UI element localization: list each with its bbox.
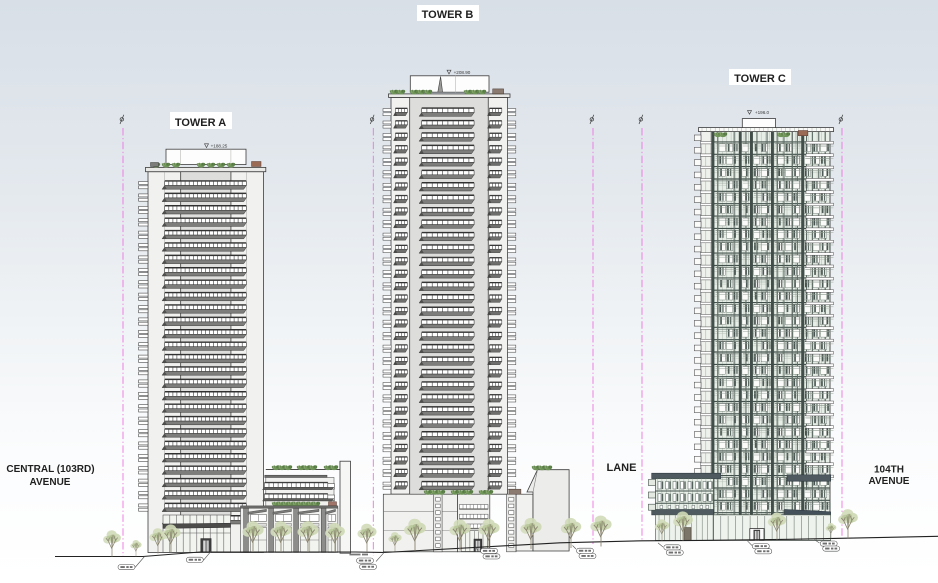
svg-text:LANE: LANE xyxy=(607,462,637,474)
svg-text:AVENUE: AVENUE xyxy=(869,476,910,487)
svg-text:TOWER C: TOWER C xyxy=(734,73,786,85)
svg-text:+208.90: +208.90 xyxy=(454,70,471,75)
svg-text:CENTRAL (103RD): CENTRAL (103RD) xyxy=(6,464,94,475)
svg-text:AVENUE: AVENUE xyxy=(30,477,71,488)
svg-text:+188.25: +188.25 xyxy=(211,144,228,149)
svg-text:TOWER B: TOWER B xyxy=(422,9,474,21)
svg-text:104TH: 104TH xyxy=(874,465,904,476)
svg-text:+196.0: +196.0 xyxy=(755,110,770,115)
svg-text:TOWER A: TOWER A xyxy=(175,117,226,129)
